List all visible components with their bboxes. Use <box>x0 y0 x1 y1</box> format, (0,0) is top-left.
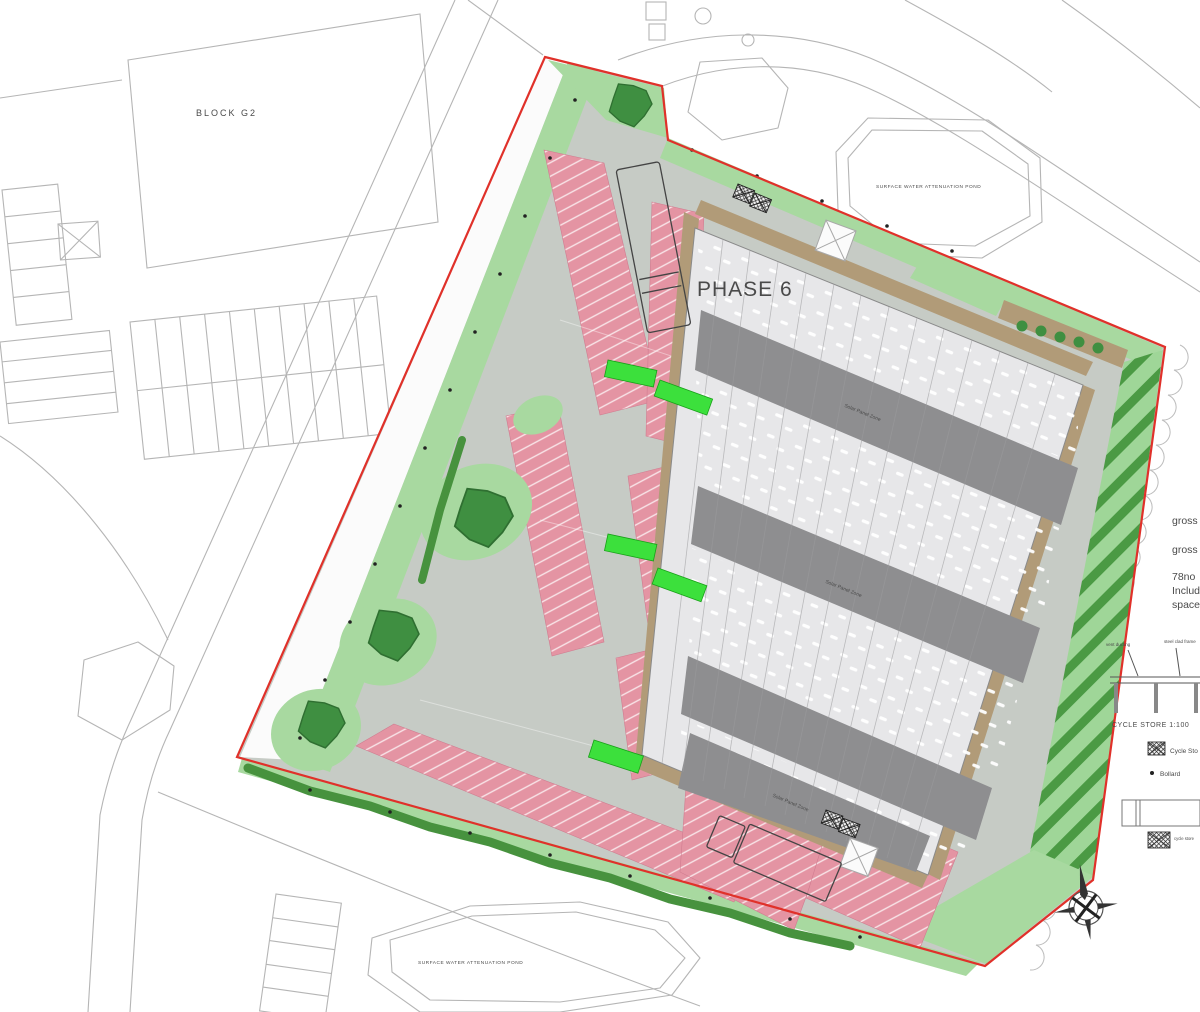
note-line: 78no <box>1172 571 1196 583</box>
phase-label: PHASE 6 <box>697 278 793 301</box>
detail-title: CYCLE STORE 1:100 <box>1112 722 1189 729</box>
legend-item-bollard: Bollard <box>1150 771 1181 778</box>
pond-label-top: SURFACE WATER ATTENUATION POND <box>876 184 981 190</box>
context-parking-grid-b <box>130 296 391 459</box>
legend-label: Bollard <box>1160 771 1181 778</box>
note-line: space <box>1172 599 1200 611</box>
context-parking-grid-c <box>0 331 118 424</box>
detail-post <box>1194 683 1198 713</box>
note-line: gross <box>1172 515 1198 527</box>
pond-outline-small <box>688 58 788 140</box>
crossed-square-marker <box>58 221 100 260</box>
pond-outline-bottom <box>368 902 700 1012</box>
cycle-store-hatch-symbol: cycle store <box>1148 832 1195 848</box>
site-plan-drawing: BLOCK G2 DIAMOND DRIVE SURFACE WATER ATT… <box>0 0 1200 1012</box>
legend-small-note: cycle store <box>1174 836 1195 841</box>
legend-label: Cycle Sto <box>1170 748 1198 755</box>
side-notes: gross gross 78no Includ space <box>1172 515 1200 611</box>
context-pond-left <box>78 642 174 740</box>
block-g2-label: BLOCK G2 <box>196 108 257 118</box>
legend-item-cycle-store: Cycle Sto <box>1148 742 1198 755</box>
legend: Cycle Sto Bollard cycle store <box>1122 742 1200 848</box>
context-parking-grid-a <box>2 184 72 325</box>
detail-post <box>1154 683 1158 713</box>
detail-post <box>1114 683 1118 713</box>
detail-callout-left: vent ducting <box>1106 642 1131 647</box>
note-line: gross <box>1172 544 1198 556</box>
pond-label-bottom: SURFACE WATER ATTENUATION POND <box>418 960 523 966</box>
bollard-icon <box>1150 771 1154 775</box>
detail-callout-right: steel clad frame <box>1164 639 1196 644</box>
site-plan-page: BLOCK G2 DIAMOND DRIVE SURFACE WATER ATT… <box>0 0 1200 1012</box>
cycle-store-plan-drawing <box>1122 800 1200 826</box>
context-parking-grid-d <box>260 894 342 1012</box>
note-line: Includ <box>1172 585 1200 597</box>
